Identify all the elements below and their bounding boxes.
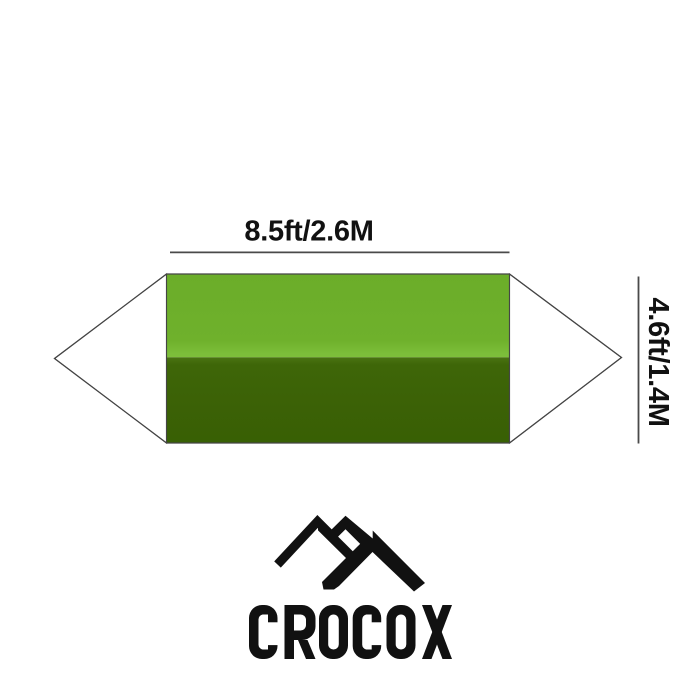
svg-text:8.5ft/2.6M: 8.5ft/2.6M <box>244 216 373 248</box>
svg-text:4.6ft/1.4M: 4.6ft/1.4M <box>642 297 674 426</box>
